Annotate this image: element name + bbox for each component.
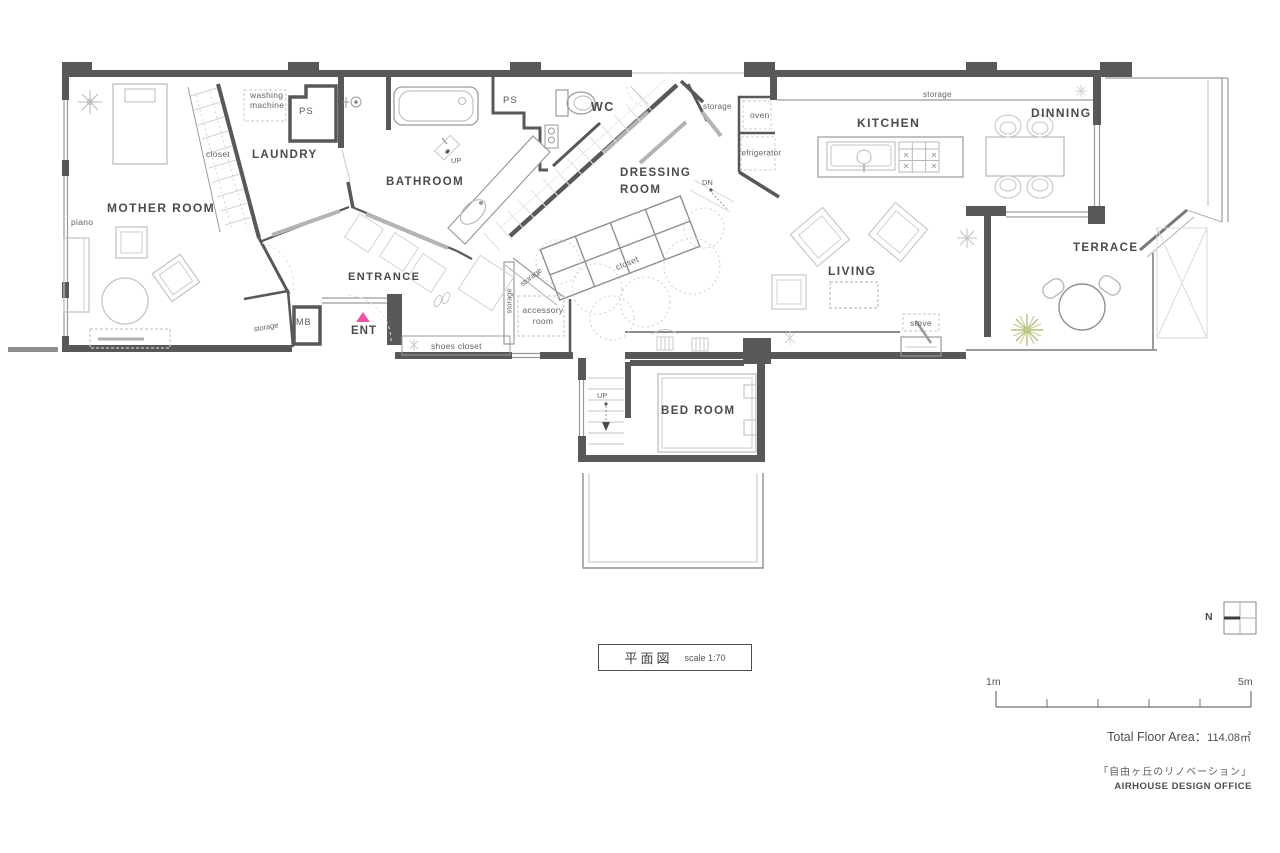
plant-icon-terrace: [1011, 314, 1043, 346]
washing-line2: machine: [250, 101, 284, 111]
scalebar-start-label: 1m: [986, 676, 1001, 688]
scalebar-end-label: 5m: [1238, 676, 1253, 688]
north-compass-icon: [1224, 602, 1256, 634]
dressing-closet-grid: [540, 196, 699, 300]
label-washing-machine: washing machine: [250, 91, 284, 110]
label-storage-wc: storage: [703, 102, 732, 111]
total-floor-area: Total Floor Area：114.08㎡: [1107, 726, 1251, 745]
label-stove: stove: [910, 318, 932, 328]
door-arcs: [262, 86, 649, 341]
vanity-counter-icon: [448, 136, 550, 244]
scale-bar: [996, 691, 1251, 707]
label-refrigerator: refrigerator: [739, 149, 782, 158]
room-label-bed-room: BED ROOM: [661, 405, 735, 417]
drawing-scale-note: scale 1:70: [684, 653, 725, 663]
entrance-marker-label: ENT: [351, 325, 377, 337]
room-label-entrance: ENTRANCE: [348, 271, 420, 283]
label-dn: DN: [702, 178, 713, 187]
north-label: N: [1205, 611, 1213, 623]
dn-dot: [709, 188, 712, 191]
plant-icon-mother: [78, 90, 102, 114]
terrace-furniture: [1040, 273, 1123, 330]
label-accessory-room: accessory room: [523, 305, 564, 327]
room-label-terrace: TERRACE: [1073, 242, 1138, 254]
stairwell-void: [583, 473, 763, 568]
label-closet-mother: closet: [206, 149, 230, 159]
dining-set-icon: [986, 115, 1064, 198]
label-shoes-closet: shoes closet: [431, 341, 482, 351]
project-title: 「自由ヶ丘のリノベーション」: [1098, 763, 1252, 778]
room-label-laundry: LAUNDRY: [252, 149, 318, 161]
dressing-line2: ROOM: [620, 182, 691, 199]
drawing-title-box: 平面図 scale 1:70: [598, 644, 752, 671]
mother-room-furniture: [64, 84, 200, 348]
room-label-kitchen: KITCHEN: [857, 116, 920, 130]
room-label-wc: WC: [591, 100, 615, 114]
room-label-dinning: DINNING: [1031, 106, 1091, 120]
room-label-mother-room: MOTHER ROOM: [107, 201, 215, 215]
room-label-dressing-room: DRESSING ROOM: [620, 165, 691, 199]
kitchen-island-icon: [818, 137, 963, 177]
total-floor-area-value: 114.08㎡: [1207, 732, 1251, 744]
floor-plan-sheet: MOTHER ROOM LAUNDRY BATHROOM WC DRESSING…: [0, 0, 1280, 853]
toilet-icon: [556, 90, 595, 116]
label-storage-kitchen: storage: [923, 90, 952, 99]
cooktop-icon: [899, 142, 939, 172]
total-floor-area-label: Total Floor Area：: [1107, 730, 1207, 744]
flower-icon-dining: [1075, 85, 1087, 97]
up-dot-bathroom: [446, 149, 449, 152]
label-storage-hall-vert: storage: [505, 288, 514, 313]
wall-outlines: [218, 77, 779, 353]
label-oven: oven: [750, 110, 770, 120]
laundry-tap-icon: [343, 97, 361, 108]
stairs-up-marker: [602, 402, 610, 431]
walls: [8, 62, 1132, 462]
wc-basin-icon: [545, 125, 558, 148]
dining-chairs: [995, 115, 1053, 198]
living-furniture: [772, 202, 928, 309]
label-ps-top: PS: [299, 106, 314, 117]
label-up-bathroom: UP: [451, 156, 461, 165]
entrance-marker-icon: [356, 312, 370, 322]
dressing-line1: DRESSING: [620, 165, 691, 182]
room-label-living: LIVING: [828, 264, 876, 278]
entrance-tiles: [345, 214, 514, 311]
accessory-line1: accessory: [523, 305, 564, 316]
label-up-stairs: UP: [597, 391, 607, 400]
office-name: AIRHOUSE DESIGN OFFICE: [1114, 781, 1252, 792]
plant-icon-living: [957, 228, 977, 248]
label-ps-wc: PS: [503, 95, 518, 106]
room-label-bathroom: BATHROOM: [386, 176, 464, 188]
floor-plan-drawing: [0, 0, 1280, 853]
label-piano: piano: [71, 217, 93, 227]
bathtub-icon: [394, 87, 478, 125]
label-mb: MB: [296, 317, 312, 327]
accessory-line2: room: [523, 316, 564, 327]
drawing-title: 平面図: [624, 648, 672, 667]
